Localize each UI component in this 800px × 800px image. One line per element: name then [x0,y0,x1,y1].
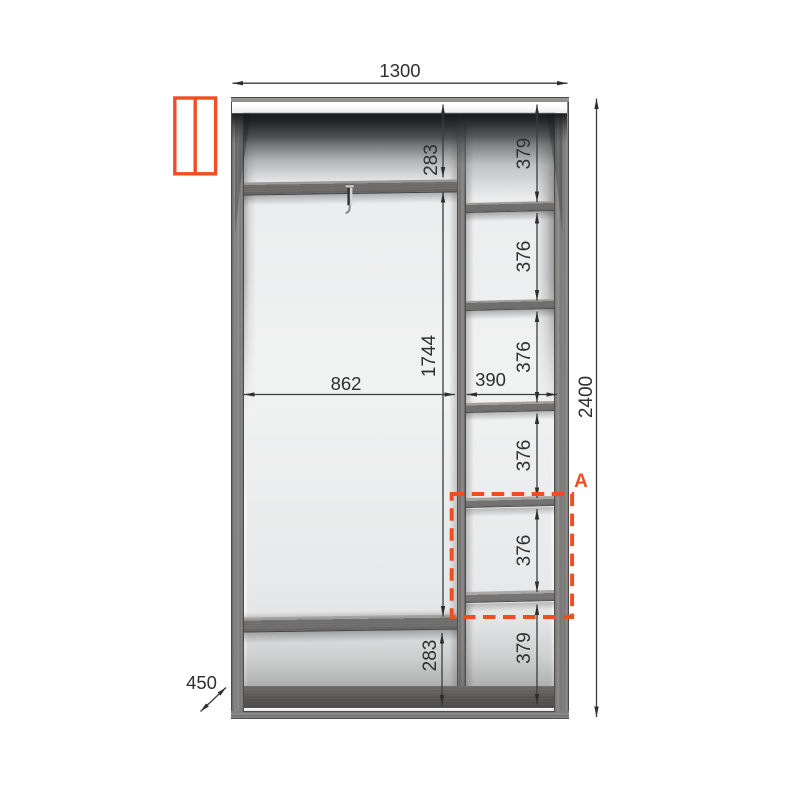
svg-text:862: 862 [331,373,362,394]
svg-text:379: 379 [514,138,535,170]
svg-text:1300: 1300 [379,60,420,81]
svg-text:376: 376 [514,535,535,567]
svg-text:1744: 1744 [419,334,440,377]
svg-text:A: A [574,471,588,492]
svg-text:376: 376 [514,241,535,273]
svg-text:376: 376 [514,341,535,373]
svg-text:283: 283 [420,640,441,672]
svg-text:379: 379 [514,632,535,664]
svg-text:390: 390 [475,369,506,390]
svg-text:2400: 2400 [576,376,597,418]
svg-text:283: 283 [421,144,442,176]
svg-text:376: 376 [514,440,535,472]
svg-text:450: 450 [186,672,217,693]
